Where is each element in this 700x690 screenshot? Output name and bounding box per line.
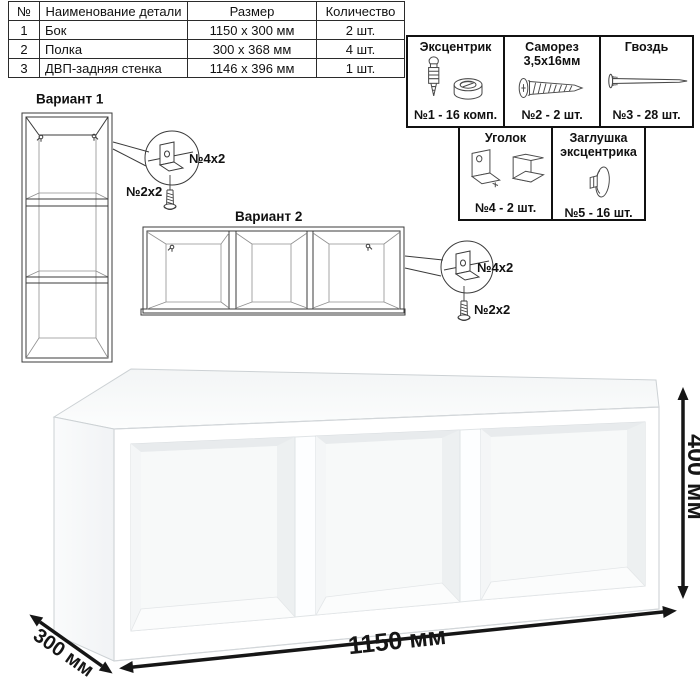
callout-screw-label: №2х2 — [474, 302, 510, 317]
variant1-drawing — [22, 113, 112, 362]
bracket-detail-icon — [148, 142, 193, 171]
arrowhead — [678, 586, 689, 599]
variant1-callout: №4х2 №2х2 — [113, 131, 225, 210]
variant2-drawing — [141, 227, 405, 315]
diagram-canvas: Вариант 1 №4х2 №2х2 Вариант 2 — [0, 0, 700, 690]
divider-panel — [460, 429, 481, 602]
shelf-bracket-icon — [366, 244, 372, 251]
shelf-3d-render — [54, 369, 659, 661]
callout-bracket-label: №4х2 — [189, 151, 225, 166]
callout-bracket-label: №4х2 — [477, 260, 513, 275]
variant1-title: Вариант 1 — [36, 92, 104, 107]
variant2-callout: №4х2 №2х2 — [405, 241, 513, 321]
arrowhead — [678, 387, 689, 400]
variant2-title: Вариант 2 — [235, 209, 302, 224]
divider-panel — [295, 436, 316, 617]
arrowhead — [119, 661, 134, 673]
height-dimension-label: 400 мм — [682, 434, 700, 520]
assembly-instruction-page: № Наименование детали Размер Количество … — [0, 0, 700, 690]
callout-screw-label: №2х2 — [126, 184, 162, 199]
screw-detail-icon — [458, 286, 470, 321]
dimension-height: 400 мм — [678, 387, 700, 599]
arrowhead — [662, 606, 677, 618]
shelf-left-face — [54, 417, 114, 661]
shelf-bracket-icon — [37, 135, 43, 142]
screw-detail-icon — [164, 175, 176, 210]
shelf-bracket-icon — [168, 245, 174, 252]
compartment — [316, 430, 460, 615]
compartment — [481, 422, 645, 600]
compartment — [131, 437, 295, 631]
